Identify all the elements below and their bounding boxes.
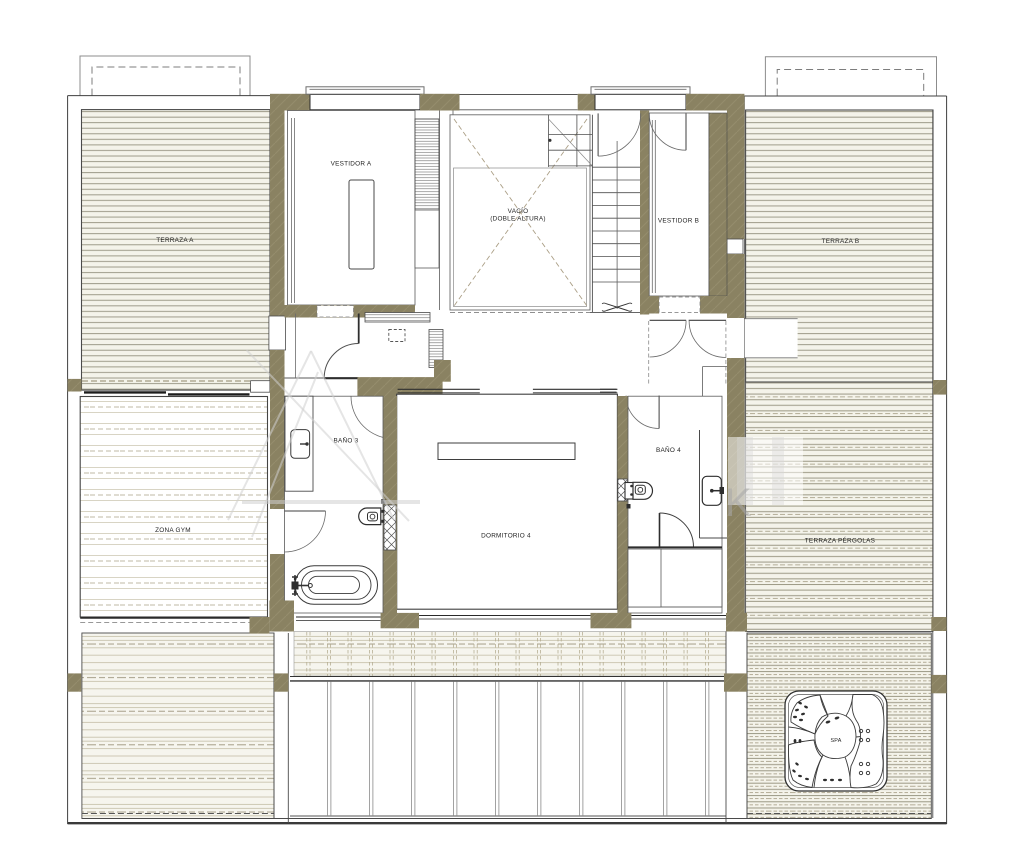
svg-text:TERRAZA PÉRGOLAS: TERRAZA PÉRGOLAS [805, 536, 875, 545]
svg-text:ZONA GYM: ZONA GYM [155, 527, 191, 534]
svg-text:(DOBLE ALTURA): (DOBLE ALTURA) [490, 216, 546, 223]
svg-text:TERRAZA A: TERRAZA A [156, 237, 194, 244]
svg-text:TERRAZA B: TERRAZA B [822, 238, 860, 245]
svg-text:K: K [725, 481, 752, 525]
svg-text:VESTIDOR B: VESTIDOR B [658, 218, 699, 225]
svg-text:VACÍO: VACÍO [508, 206, 529, 215]
svg-text:VESTIDOR A: VESTIDOR A [331, 161, 372, 168]
svg-text:BAÑO 4: BAÑO 4 [656, 445, 681, 454]
svg-text:DORMITORIO 4: DORMITORIO 4 [481, 533, 531, 540]
svg-text:SPA: SPA [831, 738, 842, 744]
